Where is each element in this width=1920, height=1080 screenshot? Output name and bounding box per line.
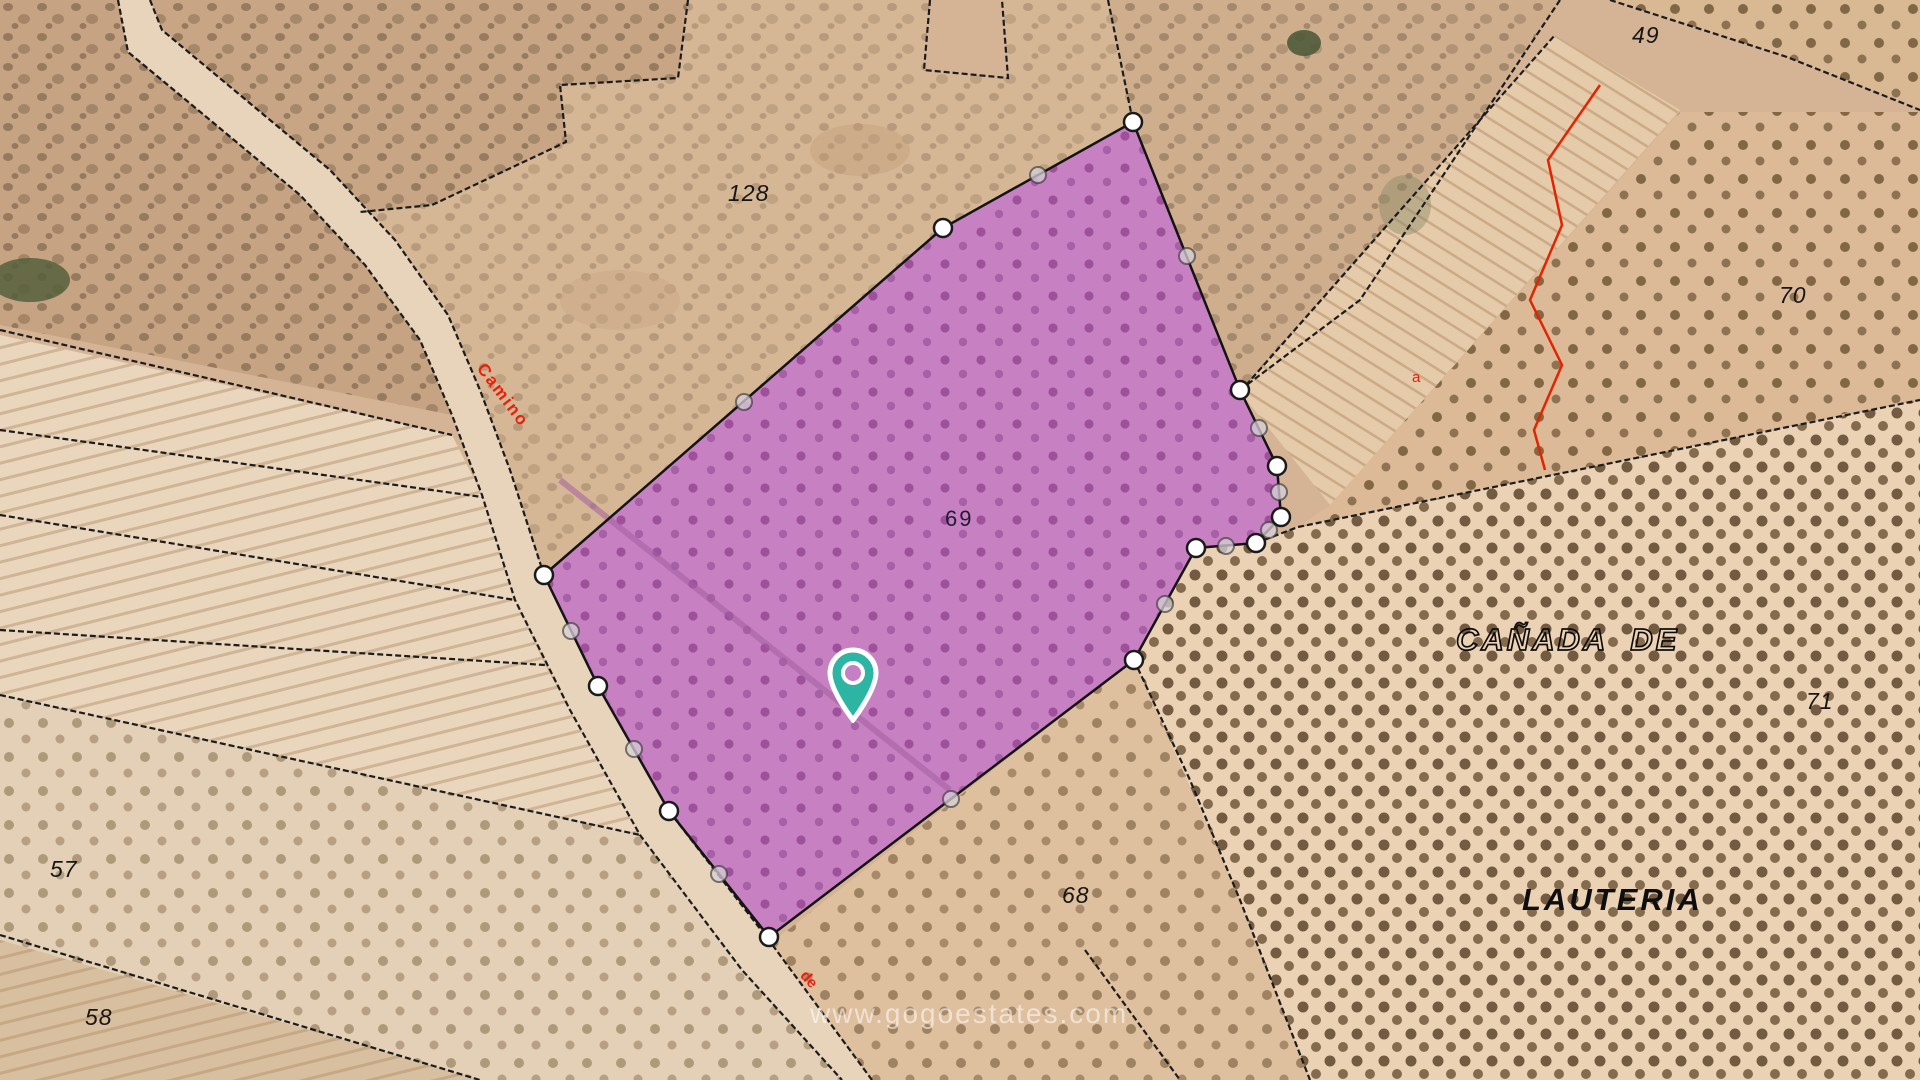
road-label-a: a (1412, 370, 1420, 385)
aerial-map-canvas[interactable]: 128 69 68 49 70 71 57 58 CAÑADA DE LAUTE… (0, 0, 1920, 1080)
watermark-text: www.gogoestates.com (810, 1000, 1128, 1028)
parcel-label-49: 49 (1632, 24, 1660, 47)
place-label-lauteria: LAUTERIA (1522, 884, 1703, 915)
parcel-label-71: 71 (1806, 690, 1834, 713)
parcel-label-68: 68 (1062, 884, 1090, 907)
parcel-label-69: 69 (945, 508, 973, 530)
parcel-label-128: 128 (728, 182, 769, 205)
place-label-canada-de: CAÑADA DE (1456, 624, 1679, 655)
parcel-label-57: 57 (50, 858, 78, 881)
aerial-map-art (0, 0, 1920, 1080)
parcel-label-70: 70 (1779, 284, 1807, 307)
location-pin-icon[interactable] (827, 647, 879, 723)
parcel-label-58: 58 (85, 1006, 113, 1029)
